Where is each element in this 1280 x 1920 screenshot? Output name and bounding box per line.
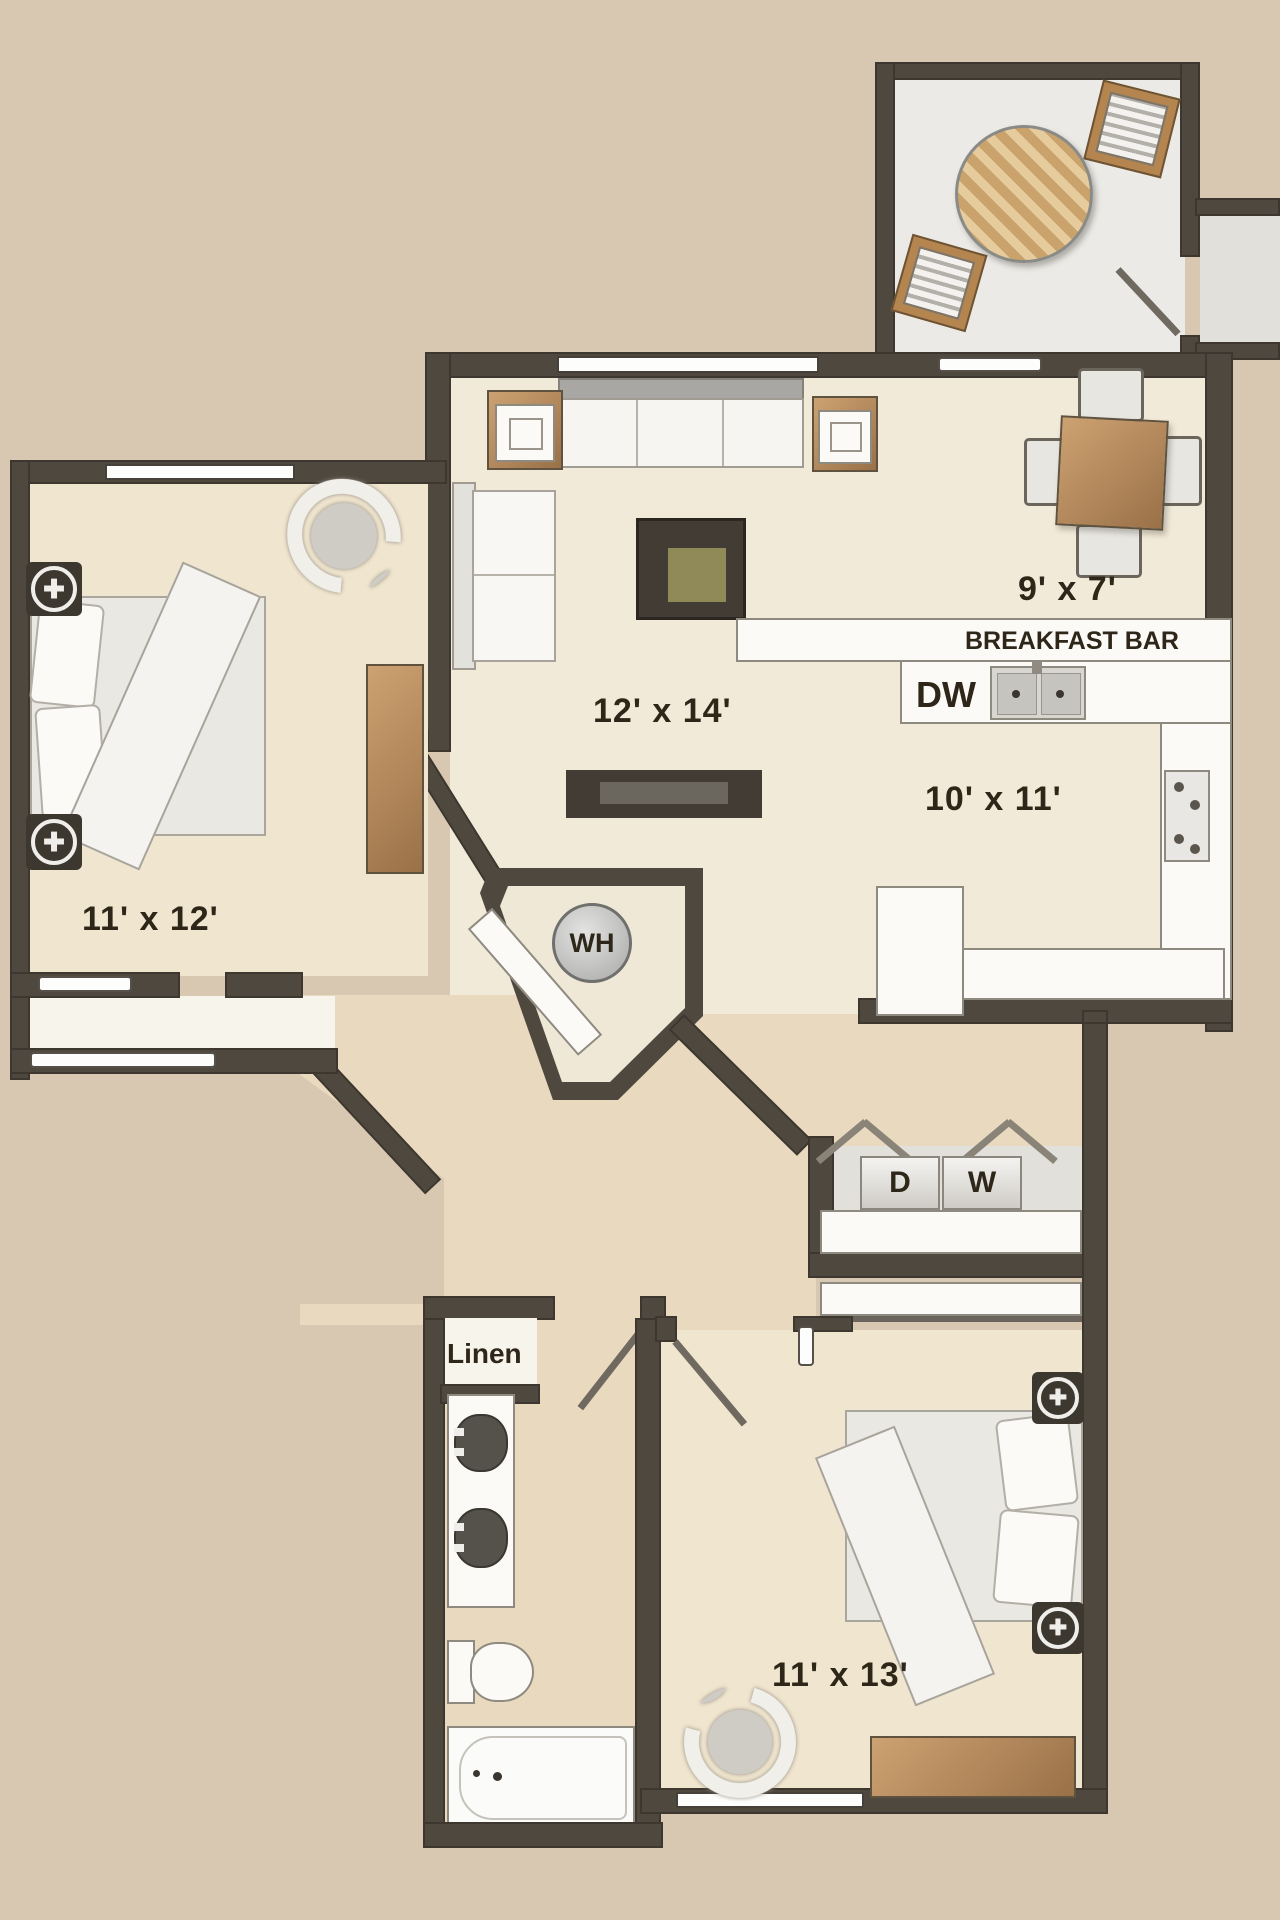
pillow bbox=[992, 1509, 1080, 1610]
sofa bbox=[558, 398, 804, 468]
wall bbox=[875, 62, 895, 374]
dining-chair bbox=[1078, 368, 1144, 422]
wall bbox=[1195, 198, 1280, 216]
sofa-cushion-line bbox=[722, 400, 724, 466]
faucet bbox=[1032, 660, 1042, 674]
dryer-label: D bbox=[889, 1166, 911, 1200]
bed-post: ✚ bbox=[1032, 1372, 1084, 1424]
wall bbox=[655, 1316, 677, 1342]
vanity-sink bbox=[454, 1508, 508, 1568]
dresser bbox=[366, 664, 424, 874]
bed-post: ✚ bbox=[26, 562, 82, 616]
neighbor-landing-floor bbox=[1200, 216, 1280, 342]
table-lamp bbox=[495, 404, 555, 462]
tub-drain bbox=[493, 1772, 502, 1781]
bedroom2-closet-doors bbox=[820, 1282, 1082, 1316]
bedroom2-dims-label: 11' x 13' bbox=[772, 1656, 909, 1695]
wall bbox=[423, 1296, 555, 1320]
linen-closet-label: Linen bbox=[447, 1338, 522, 1370]
pillow bbox=[995, 1412, 1080, 1512]
wall bbox=[425, 352, 451, 752]
water-heater-label: WH bbox=[570, 928, 615, 959]
patio-sliding-door bbox=[938, 357, 1042, 372]
water-heater: WH bbox=[552, 903, 632, 983]
dining-table bbox=[1055, 415, 1169, 531]
laundry-counter bbox=[820, 1210, 1082, 1254]
loveseat bbox=[472, 490, 556, 662]
vanity-sink bbox=[454, 1414, 508, 1472]
loveseat-cushion-line bbox=[474, 574, 554, 576]
table-lamp bbox=[818, 410, 872, 464]
bathtub bbox=[447, 1726, 635, 1826]
toilet-bowl bbox=[470, 1642, 534, 1702]
dresser bbox=[870, 1736, 1076, 1798]
coffee-table-top bbox=[668, 548, 726, 602]
dryer: D bbox=[860, 1156, 940, 1210]
chair-cushion bbox=[1095, 92, 1168, 167]
bedroom1-closet-door bbox=[38, 976, 132, 992]
bedroom2-window bbox=[676, 1792, 864, 1808]
floor-plan: 12' x 14' 9' x 7' BREAKFAST BAR DW 10' x… bbox=[0, 0, 1280, 1920]
bedroom1-closet-floor bbox=[28, 996, 335, 1054]
living-window bbox=[557, 356, 819, 373]
bedroom2-door-jamb bbox=[798, 1326, 814, 1366]
patio-table bbox=[955, 125, 1093, 263]
sofa-cushion-line bbox=[636, 400, 638, 466]
wall bbox=[1180, 62, 1200, 257]
kitchen-counter bbox=[960, 948, 1225, 1000]
kitchen-peninsula bbox=[876, 886, 964, 1016]
washer-label: W bbox=[968, 1166, 996, 1200]
bed-post: ✚ bbox=[26, 814, 82, 870]
wall bbox=[875, 62, 1200, 80]
wall bbox=[635, 1318, 661, 1848]
chair-cushion bbox=[903, 246, 975, 320]
kitchen-dims-label: 10' x 11' bbox=[925, 780, 1062, 819]
breakfast-bar-label: BREAKFAST BAR bbox=[965, 627, 1179, 656]
stove bbox=[1164, 770, 1210, 862]
wall bbox=[1082, 1022, 1108, 1812]
washer: W bbox=[942, 1156, 1022, 1210]
bedroom1-dims-label: 11' x 12' bbox=[82, 900, 219, 939]
wall bbox=[225, 972, 303, 998]
wall bbox=[423, 1822, 663, 1848]
living-dims-label: 12' x 14' bbox=[593, 692, 732, 731]
tub-faucet bbox=[473, 1770, 480, 1777]
bedroom1-window bbox=[105, 464, 295, 480]
entry-sliding-door bbox=[30, 1052, 216, 1068]
wall bbox=[423, 1296, 445, 1848]
dining-dims-label: 9' x 7' bbox=[1018, 570, 1117, 609]
dishwasher-label: DW bbox=[916, 674, 976, 716]
kitchen-sink bbox=[990, 666, 1086, 720]
bed-post: ✚ bbox=[1032, 1602, 1084, 1654]
wall bbox=[808, 1252, 1108, 1278]
tv-screen bbox=[600, 782, 728, 804]
